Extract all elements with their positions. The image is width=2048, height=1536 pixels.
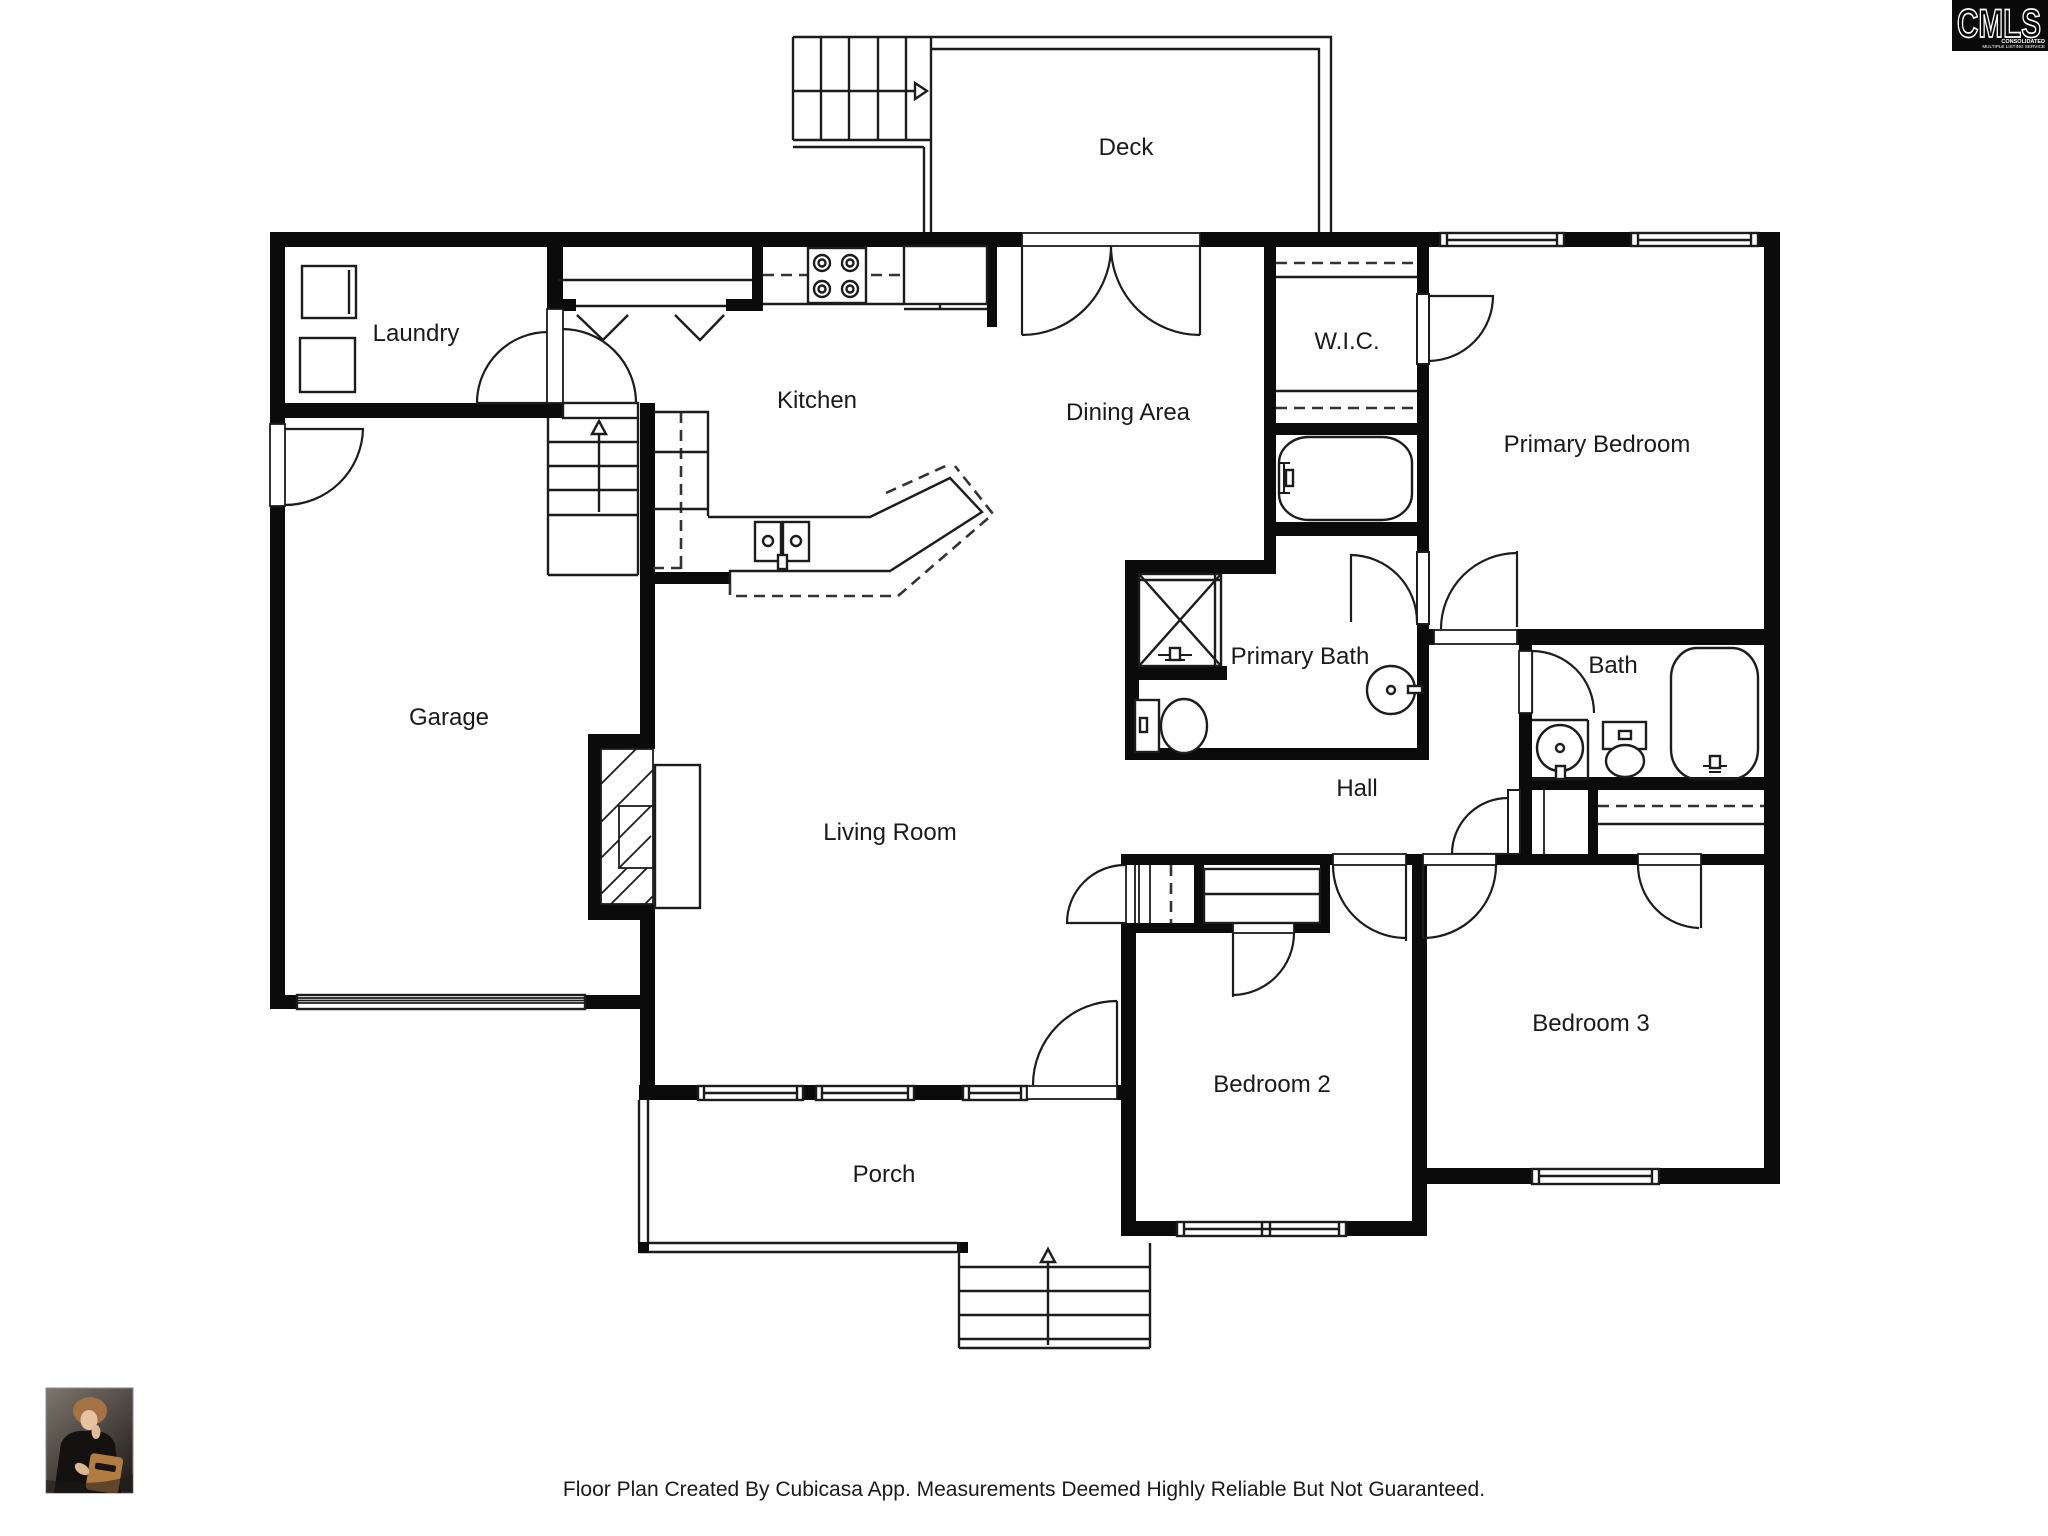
- svg-text:MULTIPLE LISTING SERVICE: MULTIPLE LISTING SERVICE: [1982, 44, 2045, 49]
- svg-text:Kitchen: Kitchen: [777, 387, 857, 414]
- svg-text:Dining Area: Dining Area: [1066, 399, 1191, 426]
- svg-text:Living Room: Living Room: [823, 819, 956, 846]
- svg-text:Hall: Hall: [1336, 775, 1377, 802]
- svg-text:Bedroom 2: Bedroom 2: [1213, 1071, 1330, 1098]
- svg-text:Floor Plan Created By Cubicasa: Floor Plan Created By Cubicasa App. Meas…: [563, 1478, 1485, 1501]
- svg-text:Primary Bath: Primary Bath: [1231, 643, 1370, 670]
- svg-text:Garage: Garage: [409, 704, 489, 731]
- svg-text:Bath: Bath: [1588, 652, 1637, 679]
- svg-text:Primary Bedroom: Primary Bedroom: [1504, 431, 1691, 458]
- svg-text:Bedroom 3: Bedroom 3: [1532, 1010, 1649, 1037]
- svg-text:W.I.C.: W.I.C.: [1314, 328, 1379, 355]
- svg-text:Laundry: Laundry: [373, 320, 460, 347]
- svg-text:Deck: Deck: [1099, 134, 1155, 161]
- svg-text:Porch: Porch: [853, 1161, 916, 1188]
